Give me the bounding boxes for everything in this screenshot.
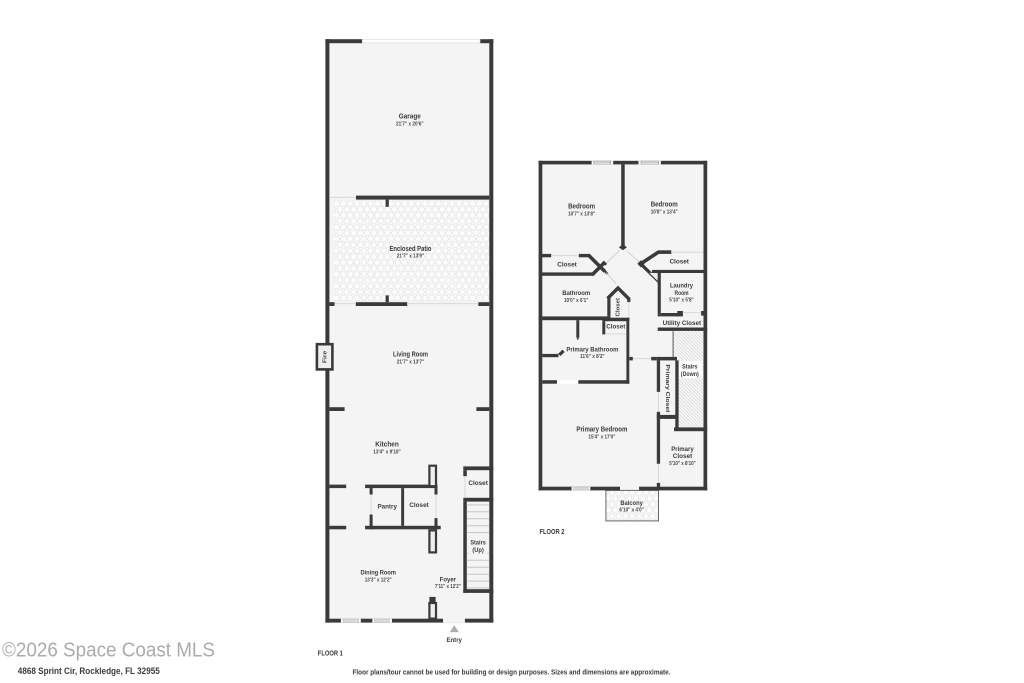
svg-text:Closet: Closet bbox=[557, 262, 577, 269]
svg-text:Floor plans/tour cannot be use: Floor plans/tour cannot be used for buil… bbox=[353, 669, 671, 676]
svg-text:Bedroom: Bedroom bbox=[651, 202, 678, 209]
svg-text:Kitchen: Kitchen bbox=[375, 442, 399, 449]
svg-text:Stairs: Stairs bbox=[470, 539, 486, 546]
svg-text:Pantry: Pantry bbox=[377, 504, 397, 511]
svg-text:10'0" x 6'1": 10'0" x 6'1" bbox=[564, 298, 589, 304]
svg-text:11'6" x 8'2": 11'6" x 8'2" bbox=[580, 354, 605, 360]
svg-text:Bedroom: Bedroom bbox=[568, 204, 595, 211]
svg-text:10'7" x 13'8": 10'7" x 13'8" bbox=[568, 212, 596, 218]
svg-text:13'3" x 12'2": 13'3" x 12'2" bbox=[365, 577, 393, 583]
svg-text:Fire: Fire bbox=[323, 351, 329, 364]
svg-text:Primary Bathroom: Primary Bathroom bbox=[566, 346, 618, 353]
svg-text:4868 Sprint Cir, Rockledge, FL: 4868 Sprint Cir, Rockledge, FL 32955 bbox=[18, 666, 160, 676]
svg-text:Closet: Closet bbox=[673, 453, 693, 460]
svg-text:15'4" x 17'0": 15'4" x 17'0" bbox=[588, 434, 616, 440]
svg-text:Closet: Closet bbox=[606, 324, 625, 331]
svg-text:Garage: Garage bbox=[399, 114, 421, 121]
svg-text:Room: Room bbox=[675, 290, 689, 297]
svg-text:21'7" x 13'7": 21'7" x 13'7" bbox=[397, 360, 425, 366]
svg-text:21'7" x 20'6": 21'7" x 20'6" bbox=[396, 121, 424, 127]
svg-text:5'10" x 8'10": 5'10" x 8'10" bbox=[669, 461, 696, 467]
svg-text:Dining Room: Dining Room bbox=[360, 570, 396, 577]
svg-text:Closet: Closet bbox=[669, 259, 689, 266]
svg-text:FLOOR 1: FLOOR 1 bbox=[318, 649, 343, 658]
svg-text:Primary: Primary bbox=[671, 446, 694, 453]
svg-text:Utility Closet: Utility Closet bbox=[663, 320, 702, 327]
svg-text:21'7" x 13'9": 21'7" x 13'9" bbox=[397, 254, 425, 260]
svg-text:Balcony: Balcony bbox=[620, 500, 643, 507]
svg-text:(Up): (Up) bbox=[472, 547, 484, 554]
svg-text:Closet: Closet bbox=[409, 502, 429, 509]
svg-text:Bathroom: Bathroom bbox=[562, 290, 590, 297]
svg-text:©2026 Space Coast MLS: ©2026 Space Coast MLS bbox=[2, 639, 215, 662]
svg-text:(Down): (Down) bbox=[681, 371, 699, 378]
svg-text:Primary Closet: Primary Closet bbox=[664, 364, 670, 412]
svg-text:Primary Bedroom: Primary Bedroom bbox=[576, 426, 627, 433]
svg-text:Closet: Closet bbox=[616, 298, 622, 317]
svg-text:Living Room: Living Room bbox=[393, 351, 428, 358]
svg-text:10'8" x 13'4": 10'8" x 13'4" bbox=[651, 210, 679, 216]
svg-text:13'4" x 9'10": 13'4" x 9'10" bbox=[373, 449, 401, 455]
svg-text:FLOOR 2: FLOOR 2 bbox=[540, 527, 565, 536]
svg-text:7'11" x 12'2": 7'11" x 12'2" bbox=[435, 584, 462, 590]
svg-text:Foyer: Foyer bbox=[440, 577, 457, 584]
svg-text:Laundry: Laundry bbox=[670, 283, 693, 290]
svg-text:5'10" x 5'8": 5'10" x 5'8" bbox=[669, 298, 694, 304]
svg-text:6'10" x 4'0": 6'10" x 4'0" bbox=[619, 508, 644, 514]
svg-text:Stairs: Stairs bbox=[682, 364, 698, 371]
svg-text:Entry: Entry bbox=[446, 637, 462, 644]
svg-text:Closet: Closet bbox=[468, 480, 488, 487]
svg-text:Enclosed Patio: Enclosed Patio bbox=[390, 246, 432, 253]
